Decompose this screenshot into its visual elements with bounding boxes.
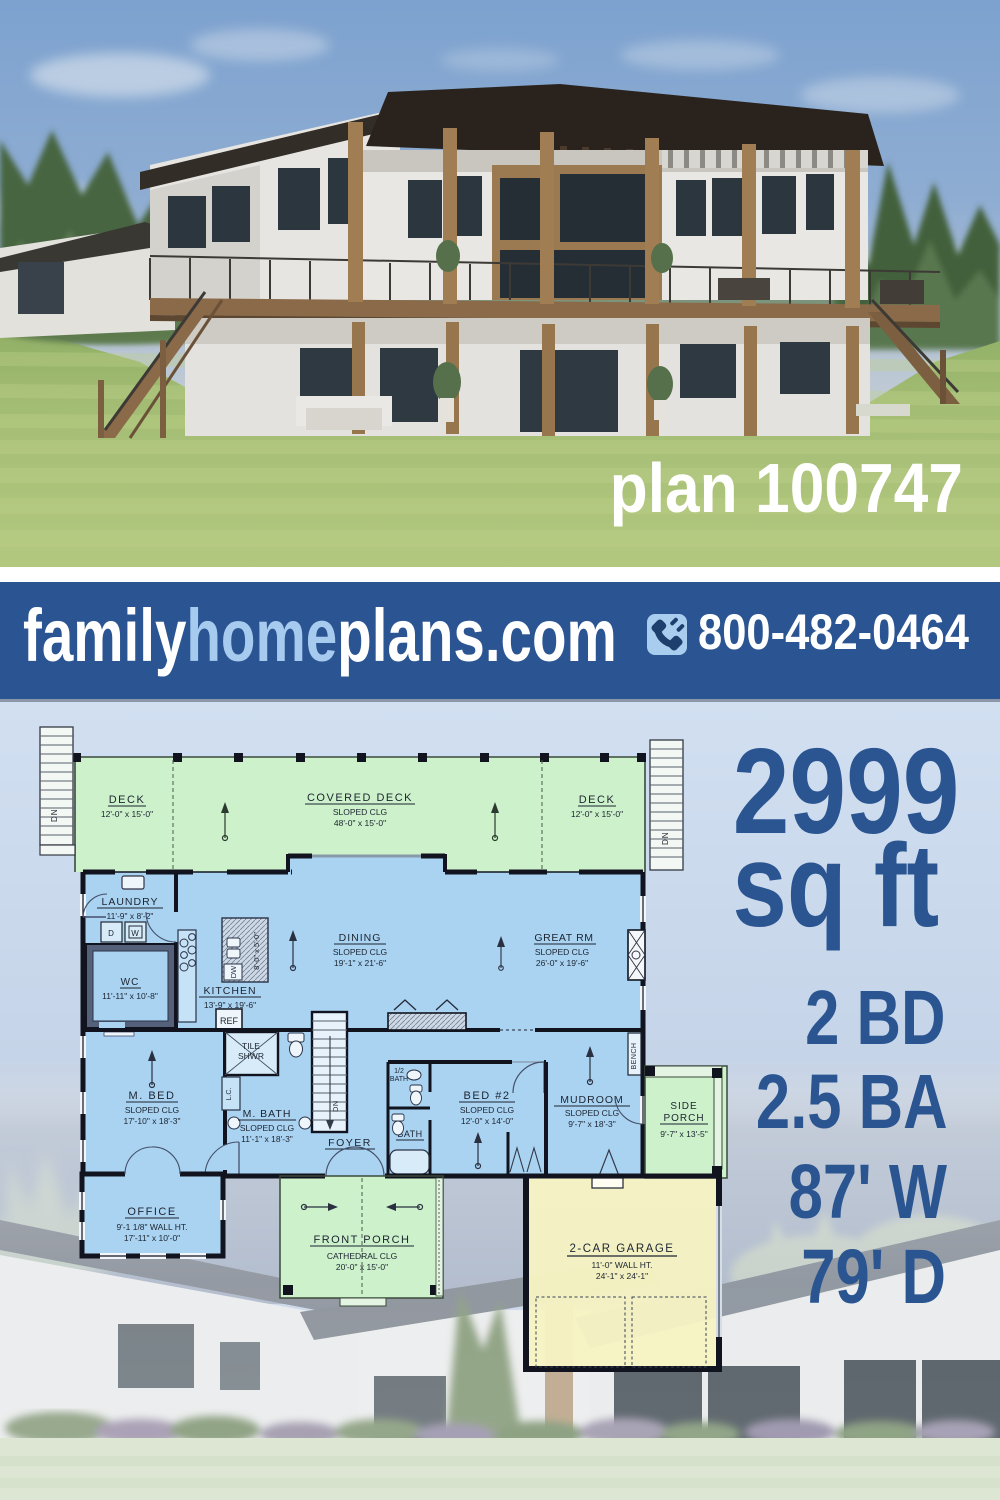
svg-text:MUDROOM: MUDROOM [560,1094,624,1106]
svg-text:W: W [131,929,139,938]
svg-text:LAUNDRY: LAUNDRY [102,896,159,908]
svg-text:SLOPED CLG: SLOPED CLG [125,1105,179,1115]
svg-text:DN: DN [331,1100,340,1112]
svg-text:SLOPED CLG: SLOPED CLG [565,1108,619,1118]
svg-text:TILE: TILE [242,1041,260,1051]
svg-text:SLOPED CLG: SLOPED CLG [333,947,387,957]
svg-text:12'-0" x 15'-0": 12'-0" x 15'-0" [101,809,153,819]
svg-text:DN: DN [50,808,59,822]
svg-text:DINING: DINING [339,932,382,944]
svg-text:20'-0" x 15'-0": 20'-0" x 15'-0" [336,1262,388,1272]
svg-text:PORCH: PORCH [663,1113,704,1124]
svg-text:M. BATH: M. BATH [243,1108,292,1120]
svg-text:12'-0" x 14'-0": 12'-0" x 14'-0" [461,1116,513,1126]
svg-text:BENCH: BENCH [631,1042,638,1069]
svg-text:17'-11" x 10'-0": 17'-11" x 10'-0" [124,1233,180,1243]
svg-text:11'-11" x 10'-8": 11'-11" x 10'-8" [102,991,158,1001]
svg-text:FRONT PORCH: FRONT PORCH [314,1234,411,1246]
svg-text:SLOPED CLG: SLOPED CLG [333,807,387,817]
svg-text:BED #2: BED #2 [464,1090,511,1102]
svg-text:OFFICE: OFFICE [127,1206,176,1218]
svg-text:48'-0" x 15'-0": 48'-0" x 15'-0" [334,818,386,828]
svg-text:D: D [108,929,114,938]
svg-text:SHWR: SHWR [238,1051,264,1061]
svg-text:9'-7" x 18'-3": 9'-7" x 18'-3" [568,1119,616,1129]
svg-text:8'-0" x 5'-0": 8'-0" x 5'-0" [252,932,261,970]
svg-text:BATH: BATH [390,1076,408,1083]
svg-text:2-CAR GARAGE: 2-CAR GARAGE [570,1243,675,1255]
svg-text:DECK: DECK [579,794,616,806]
svg-text:24'-1" x 24'-1": 24'-1" x 24'-1" [596,1271,648,1281]
svg-text:12'-0" x 15'-0": 12'-0" x 15'-0" [571,809,623,819]
svg-text:11'-0" WALL HT.: 11'-0" WALL HT. [591,1260,652,1270]
svg-text:SIDE: SIDE [670,1101,697,1112]
svg-text:DECK: DECK [109,794,146,806]
svg-text:WC: WC [121,977,140,988]
svg-text:M. BED: M. BED [129,1090,176,1102]
svg-text:CATHEDRAL CLG: CATHEDRAL CLG [327,1251,397,1261]
svg-text:17'-10" x 18'-3": 17'-10" x 18'-3" [123,1116,180,1126]
svg-text:REF: REF [220,1016,239,1026]
svg-text:SLOPED CLG: SLOPED CLG [535,947,589,957]
svg-text:DN: DN [661,831,670,845]
svg-text:L.C.: L.C. [226,1088,233,1101]
svg-text:COVERED DECK: COVERED DECK [307,792,413,804]
svg-text:DW: DW [229,965,238,978]
svg-text:9'-1 1/8" WALL HT.: 9'-1 1/8" WALL HT. [116,1222,187,1232]
svg-text:11'-1" x 18'-3": 11'-1" x 18'-3" [241,1134,293,1144]
svg-text:SLOPED CLG: SLOPED CLG [460,1105,514,1115]
svg-text:9'-7" x 13'-5": 9'-7" x 13'-5" [660,1129,708,1139]
svg-text:1/2: 1/2 [394,1068,404,1075]
svg-text:26'-0" x 19'-6": 26'-0" x 19'-6" [536,958,588,968]
svg-text:SLOPED CLG: SLOPED CLG [240,1123,294,1133]
svg-text:19'-1" x 21'-6": 19'-1" x 21'-6" [334,958,386,968]
svg-text:KITCHEN: KITCHEN [203,985,256,997]
svg-text:GREAT RM: GREAT RM [534,932,593,944]
